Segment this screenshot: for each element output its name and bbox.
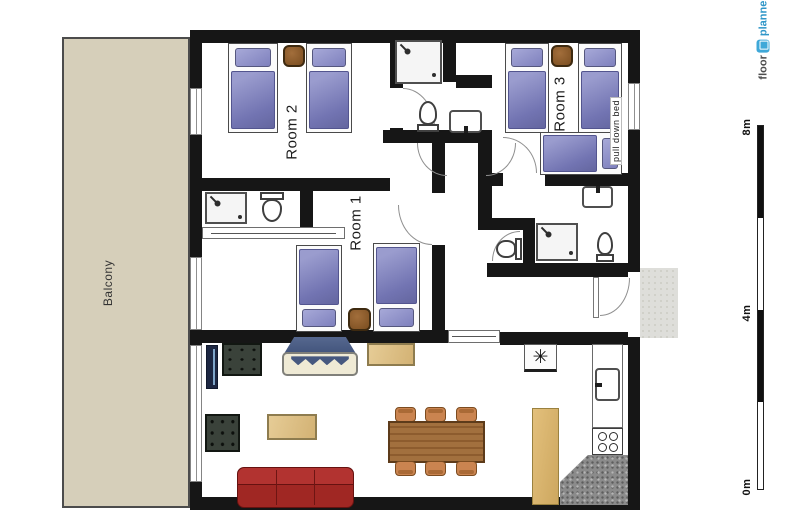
sliding-door-living[interactable] [448, 330, 500, 343]
toilet-bath1[interactable] [415, 101, 441, 132]
freezer[interactable]: ✳ [524, 344, 557, 372]
dining-table[interactable] [388, 421, 485, 463]
room2-label[interactable]: Room 2 [284, 104, 301, 160]
toilet-wc[interactable] [496, 236, 522, 262]
wall-wc-right [523, 218, 535, 263]
logo-text-planner: planner [757, 0, 769, 36]
balcony-area[interactable] [62, 37, 190, 508]
wall-room3-bottom-a [492, 173, 503, 186]
sofa-back [238, 468, 353, 485]
floorplan-canvas: Balcony Room [0, 0, 800, 532]
window-living[interactable] [190, 345, 202, 482]
bed-pillow [302, 309, 335, 327]
bed-blanket [376, 247, 417, 304]
dining-chair[interactable] [456, 407, 477, 422]
wall-ensuite-stub [300, 180, 313, 227]
burner [609, 432, 618, 441]
burner [609, 443, 618, 452]
bed-pillow [235, 48, 272, 67]
wall-left-b [190, 135, 202, 257]
door-arc-entry[interactable] [600, 278, 630, 316]
room1-label[interactable]: Room 1 [348, 195, 365, 251]
bed-room1-left[interactable] [296, 245, 342, 332]
toilet-tank [515, 238, 522, 260]
kitchen-worktop[interactable] [560, 455, 628, 505]
balcony-label[interactable]: Balcony [101, 260, 115, 306]
dining-chair[interactable] [395, 461, 416, 476]
stove[interactable] [592, 428, 623, 455]
ruler-segment [758, 126, 763, 218]
window-room2[interactable] [190, 88, 202, 135]
wall-bath1-step [456, 75, 492, 88]
door-arc-room1[interactable] [398, 205, 432, 245]
toilet-tank [260, 192, 284, 200]
logo-text-floor: floor [757, 55, 769, 79]
toilet-bowl [496, 240, 516, 259]
bed-pillow [584, 48, 616, 67]
wall-left-d [190, 482, 202, 510]
door-leaf-entry[interactable] [593, 277, 599, 318]
scale-label-8m: 8m [741, 119, 753, 136]
bed-blanket [543, 135, 597, 171]
dining-chair[interactable] [395, 407, 416, 422]
shower-head-icon [541, 227, 549, 235]
bed-pillow [511, 48, 543, 67]
bed-blanket [231, 71, 274, 129]
bed-pillow [379, 308, 413, 327]
door-arc-room3[interactable] [503, 137, 537, 173]
wall-left-a [190, 30, 202, 88]
room3-label[interactable]: Room 3 [552, 76, 569, 132]
wall-right-a [628, 30, 640, 83]
dining-chair[interactable] [425, 461, 446, 476]
toilet-tank [417, 124, 439, 132]
shower-ensuite[interactable] [205, 192, 247, 224]
floorplanner-logo-icon [757, 39, 770, 52]
toilet-ensuite[interactable] [258, 192, 286, 222]
kitchen-sink[interactable] [595, 368, 620, 401]
shower-head-icon [400, 44, 408, 52]
ruler-segment [758, 310, 763, 402]
wall-hall-left-b [432, 245, 445, 330]
toilet-bowl [262, 199, 282, 222]
wall-room2-bottom [202, 178, 390, 191]
floorplanner-logo: floor planner [757, 0, 770, 80]
sofa-divider [314, 470, 315, 506]
bed-room2-left[interactable] [228, 43, 278, 133]
wall-bath1-right [443, 43, 456, 82]
window-balcony-door[interactable] [190, 257, 202, 330]
freezer-symbol: ✳ [533, 346, 549, 369]
sliding-door-ensuite[interactable] [202, 227, 345, 239]
scale-label-4m: 4m [741, 305, 753, 322]
entry-landing [640, 268, 678, 338]
wall-right-c [628, 337, 640, 510]
wall-wc-top [492, 218, 523, 230]
nightstand-room1[interactable] [348, 308, 371, 331]
wall-bath2-bottom [487, 263, 628, 277]
burner [598, 443, 607, 452]
dining-chair[interactable] [456, 461, 477, 476]
shower-bath1[interactable] [395, 40, 442, 84]
door-arc-hall-a[interactable] [417, 143, 447, 176]
bed-room2-right[interactable] [306, 43, 352, 133]
toilet-tank [596, 254, 615, 262]
ruler-segment [758, 402, 763, 489]
kitchen-bar-counter[interactable] [532, 408, 559, 505]
bed-blanket [299, 249, 339, 305]
scale-label-0m: 0m [741, 479, 753, 496]
bed-pillow [312, 48, 345, 67]
fireplace-base[interactable] [282, 352, 358, 376]
coffee-table[interactable] [267, 414, 317, 440]
toilet-bath2[interactable] [594, 232, 616, 262]
burner [598, 432, 607, 441]
shower-bath2[interactable] [536, 223, 578, 261]
sink-bath1[interactable] [449, 110, 482, 133]
wall-right-b [628, 130, 640, 272]
sink-hall[interactable] [582, 186, 613, 208]
bed-room3-left[interactable] [505, 43, 549, 133]
pull-down-bed-label[interactable]: pull down bed [610, 97, 622, 165]
toilet-bowl [597, 232, 613, 255]
nightstand-room2[interactable] [283, 45, 305, 67]
bed-room1-right[interactable] [373, 243, 420, 332]
armchair-left[interactable] [205, 414, 240, 452]
scale-ruler [757, 125, 764, 490]
nightstand-room3[interactable] [551, 45, 573, 67]
toilet-bowl [419, 101, 438, 125]
window-room3[interactable] [628, 83, 640, 130]
bed-blanket [508, 71, 546, 129]
shower-head-icon [210, 196, 218, 204]
sofa[interactable] [237, 467, 354, 508]
sofa-divider [276, 470, 277, 506]
bed-blanket [309, 71, 349, 129]
dining-chair[interactable] [425, 407, 446, 422]
ruler-segment [758, 218, 763, 310]
armchair-top[interactable] [222, 343, 262, 376]
tv[interactable] [206, 345, 218, 389]
wall-left-c [190, 330, 202, 345]
side-table[interactable] [367, 343, 415, 366]
